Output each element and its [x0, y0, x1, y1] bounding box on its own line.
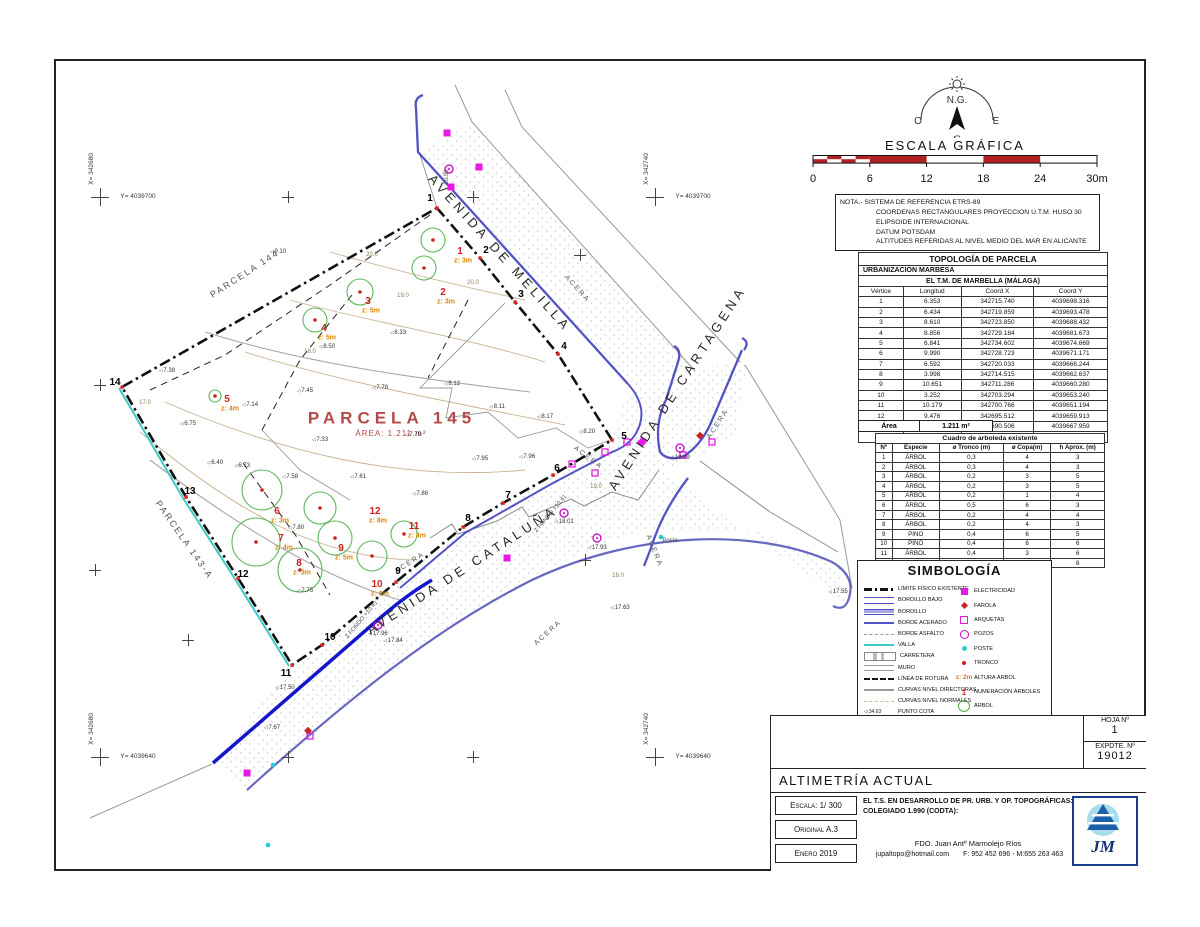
legend-label: CARRETERA	[900, 653, 935, 659]
tronco-icon	[958, 661, 970, 665]
sheet-number-cell: HOJA Nº 1	[1083, 716, 1146, 742]
altura-arbol-icon: z: 2m	[958, 674, 970, 681]
scale-bar	[805, 155, 1105, 168]
carretera-icon	[864, 652, 896, 661]
table-row: 16.353342715.7404039698.316	[859, 297, 1108, 307]
legend-row: ELECTRICIDAD	[958, 588, 1040, 595]
legend-label: ALTURA ÁRBOL	[974, 675, 1016, 681]
legend-label: NUMERACIÓN ÁRBOLES	[974, 689, 1040, 695]
compass-rose: N.G. O E S	[905, 74, 1009, 148]
note-line: DATUM POTSDAM	[840, 228, 1095, 238]
numeracion-icon: 1	[958, 688, 970, 697]
legend-row: ARQUETAS	[958, 617, 1040, 624]
area-label: Área	[859, 421, 920, 432]
terrain-lines	[262, 303, 610, 500]
legend-label: ARQUETAS	[974, 617, 1004, 623]
note-line: ALTITUDES REFERIDAS AL NIVEL MEDIO DEL M…	[840, 237, 1095, 247]
borde-asfalto-icon	[864, 634, 894, 635]
svg-text:N.G.: N.G.	[947, 95, 968, 106]
table-row: 48.856342729.1844039681.673	[859, 328, 1108, 338]
legend-label: VALLA	[898, 642, 915, 648]
poste-icon	[958, 646, 970, 651]
table-row: 69.990342728.7234039671.171	[859, 349, 1108, 359]
scale-tick: 12	[920, 173, 932, 185]
tree-canopies	[209, 228, 445, 592]
table-row: 8ÁRBOL0,243	[876, 520, 1105, 530]
trees-table: Cuadro de arboleda existenteNºEspecieø T…	[875, 433, 1105, 568]
curvas-directoras-icon	[864, 689, 894, 691]
table-row: 9PINO0,465	[876, 529, 1105, 539]
svg-text:JM: JM	[1090, 837, 1116, 856]
scale-title: ESCALA GRÁFICA	[805, 138, 1105, 153]
signature-line: FDO. Juan Antº Marmolejo Ríos	[863, 839, 1073, 848]
legend-row: z: 2mALTURA ÁRBOL	[958, 674, 1040, 681]
legend-label: TRONCO	[974, 660, 998, 666]
legend-label: POZOS	[974, 631, 994, 637]
table-row: 38.610342723.8504039688.432	[859, 317, 1108, 327]
scale-tick: 6	[867, 173, 873, 185]
legend-label: BORDILLO	[898, 609, 926, 615]
road-surface-stipple	[213, 121, 846, 790]
expedient-value: 19012	[1084, 750, 1146, 762]
legend-right-column: ELECTRICIDADFAROLAARQUETASPOZOSPOSTETRON…	[958, 588, 1040, 710]
legend-label: FAROLA	[974, 603, 996, 609]
table-row: 5ÁRBOL0,214	[876, 491, 1105, 501]
note-line: NOTA.- SISTEMA DE REFERENCIA ETRS-89	[840, 198, 1095, 208]
date-cell: Enero 2019	[775, 844, 857, 863]
sheet-number-label: HOJA Nº	[1084, 716, 1146, 724]
legend-label: ÁRBOL	[974, 703, 993, 709]
north-arrow-icon	[949, 106, 965, 130]
bordillo-icon	[864, 609, 894, 615]
scale-tick-labels: 0612182430m	[805, 173, 1105, 187]
sheet-number-value: 1	[1084, 724, 1146, 736]
legend-label: BORDE ACERADO	[898, 620, 947, 626]
borde-acerado-icon	[864, 622, 894, 624]
farola-icon	[958, 603, 970, 608]
curvas-normales-icon	[864, 701, 894, 702]
legend-label: POSTE	[974, 646, 993, 652]
table-row: 56.841342734.6024039674.669	[859, 338, 1108, 348]
legend-label: MURO	[898, 665, 915, 671]
legend-row: POZOS	[958, 631, 1040, 638]
svg-text:E: E	[993, 116, 1000, 127]
svg-text:O: O	[914, 116, 922, 127]
table-row: 910.651342711.2864039660.280	[859, 380, 1108, 390]
title-block: HOJA Nº 1 EXPDTE. Nº 19012 ALTIMETRÍA AC…	[770, 715, 1146, 871]
scale-tick: 24	[1034, 173, 1046, 185]
plan-sheet: AVENIDA DE MELILLAAVENIDA DE CARTAGENAAV…	[0, 0, 1200, 927]
sun-icon	[949, 76, 965, 92]
title-block-bottom: Escala: 1/ 300 Original A.3 Enero 2019 E…	[771, 793, 1146, 871]
legend-label: ELECTRICIDAD	[974, 588, 1015, 594]
scale-cell: Escala: 1/ 300	[775, 796, 857, 815]
muro-icon	[864, 665, 894, 671]
expedient-number-cell: EXPDTE. Nº 19012	[1083, 742, 1146, 768]
table-row: 6ÁRBOL0,563	[876, 501, 1105, 511]
table-row: 4ÁRBOL0,235	[876, 481, 1105, 491]
legend-row: POSTE	[958, 646, 1040, 653]
linea-rotura-icon	[864, 678, 894, 680]
surveyor-certification: EL T.S. EN DESARROLLO DE PR. URB. Y OP. …	[863, 797, 1073, 817]
scale-tick: 0	[810, 173, 816, 185]
area-value: 1.211 m²	[920, 421, 993, 432]
topology-table-container: TOPOLOGÍA DE PARCELAURBANIZACIÓN MARBESA…	[858, 252, 1108, 443]
legend-label: BORDILLO BAJO	[898, 597, 942, 603]
arquetas-icon	[958, 616, 970, 624]
legend-label: LÍNEA DE ROTURA	[898, 676, 948, 682]
trees-table-container: Cuadro de arboleda existenteNºEspecieø T…	[875, 433, 1105, 568]
contact-line: jupaltopo@hotmail.com F: 952 452 696 - M…	[857, 851, 1082, 858]
legend-row: TRONCO	[958, 660, 1040, 667]
bordillo-bajo-icon	[864, 597, 894, 604]
email-text: jupaltopo@hotmail.com	[876, 851, 949, 858]
company-logo: JM	[1072, 796, 1138, 866]
legend: SIMBOLOGÍA LÍMITE FÍSICO EXISTENTEBORDIL…	[857, 560, 1052, 717]
pozos-icon	[958, 630, 970, 639]
arbol-icon	[958, 700, 970, 712]
title-block-top-row: HOJA Nº 1 EXPDTE. Nº 19012	[771, 716, 1146, 769]
table-row: 7ÁRBOL0,244	[876, 510, 1105, 520]
legend-row: ÁRBOL	[958, 703, 1040, 710]
reference-note: NOTA.- SISTEMA DE REFERENCIA ETRS-89COOR…	[835, 194, 1100, 251]
original-size-cell: Original A.3	[775, 820, 857, 839]
expedient-label: EXPDTE. Nº	[1084, 742, 1146, 750]
legend-row: FAROLA	[958, 602, 1040, 609]
valla-icon	[864, 644, 894, 646]
table-row: 10PINO0,466	[876, 539, 1105, 549]
note-line: COORDENAS RECTANGULARES PROYECCION U.T.M…	[840, 208, 1095, 218]
legend-row: 1NUMERACIÓN ÁRBOLES	[958, 689, 1040, 696]
table-row: 76.592342720.0334039666.244	[859, 359, 1108, 369]
legend-title: SIMBOLOGÍA	[858, 561, 1051, 578]
area-summary: Área 1.211 m²	[858, 420, 993, 432]
table-row: 83.998342714.5154039662.637	[859, 369, 1108, 379]
drawing-title: ALTIMETRÍA ACTUAL	[771, 769, 1146, 793]
break-lines	[150, 215, 468, 595]
note-line: ELIPSOIDE INTERNACIONAL	[840, 218, 1095, 228]
limite-icon	[864, 588, 894, 591]
scale-tick: 18	[977, 173, 989, 185]
legend-label: BORDE ASFALTO	[898, 631, 944, 637]
table-row: 103.252342703.2944039653.240	[859, 390, 1108, 400]
topology-table: TOPOLOGÍA DE PARCELAURBANIZACIÓN MARBESA…	[858, 252, 1108, 443]
phone-text: F: 952 452 696 - M:655 263 463	[963, 851, 1063, 858]
table-row: 11ÁRBOL0,436	[876, 549, 1105, 559]
table-row: 1110.179342700.7664039651.194	[859, 401, 1108, 411]
table-row: 2ÁRBOL0,343	[876, 462, 1105, 472]
electricidad-icon	[958, 588, 970, 595]
graphic-scale: ESCALA GRÁFICA 0612182430m	[805, 138, 1105, 194]
scale-tick: 30m	[1086, 173, 1107, 185]
table-row: 3ÁRBOL0,235	[876, 472, 1105, 482]
table-row: 26.434342719.8594039693.478	[859, 307, 1108, 317]
table-row: 1ÁRBOL0,343	[876, 453, 1105, 463]
